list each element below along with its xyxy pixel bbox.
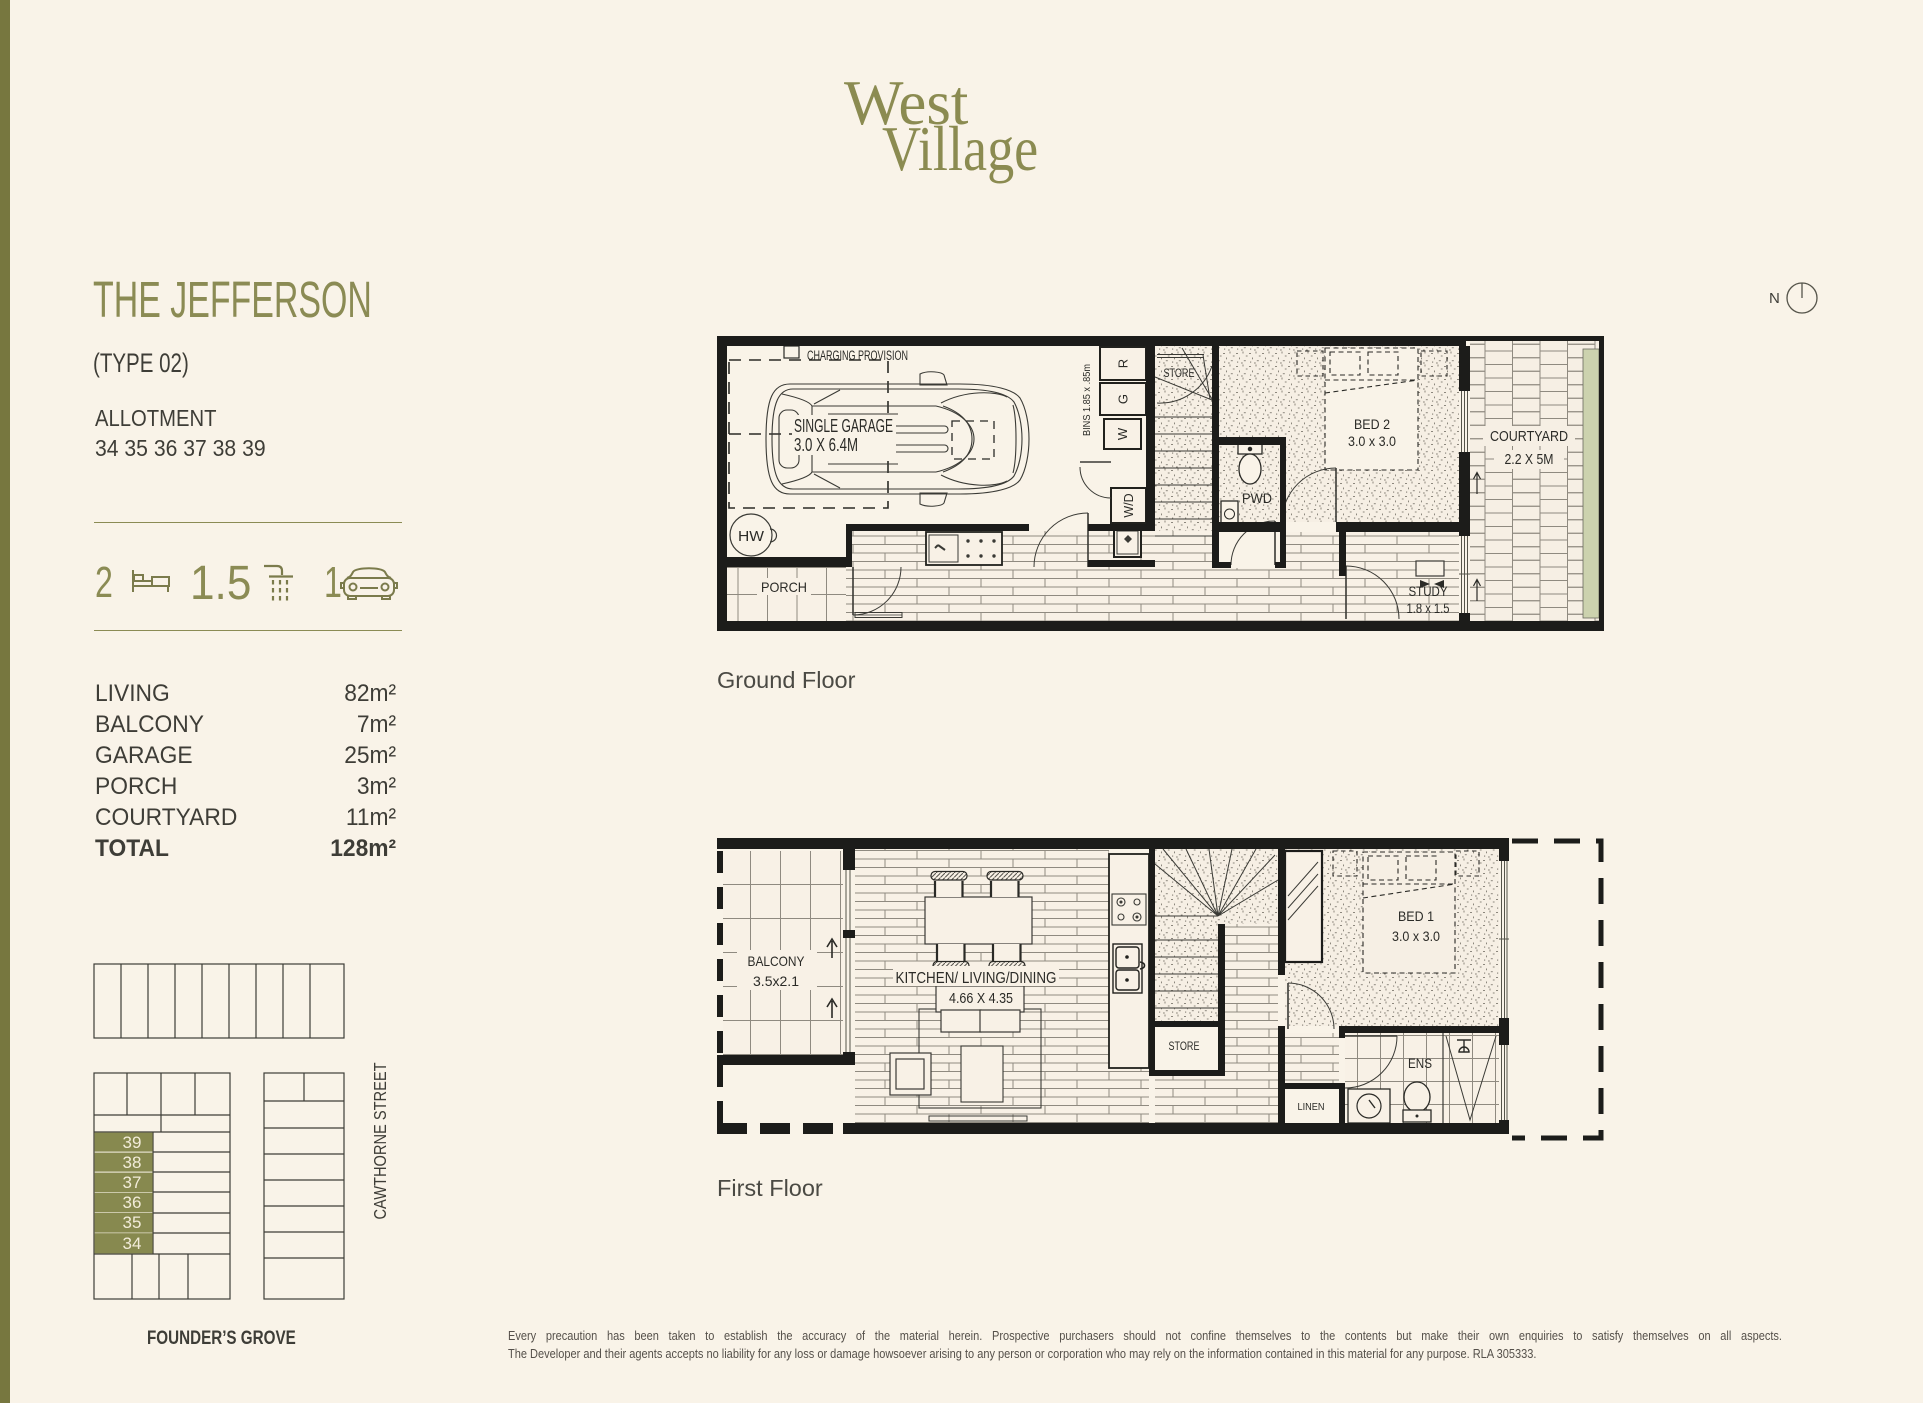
svg-text:BED 2: BED 2 bbox=[1354, 416, 1390, 432]
svg-text:COURTYARD: COURTYARD bbox=[1490, 428, 1568, 445]
svg-text:SINGLE GARAGE: SINGLE GARAGE bbox=[794, 416, 893, 436]
svg-text:35: 35 bbox=[123, 1213, 142, 1232]
svg-text:G: G bbox=[1116, 394, 1131, 404]
svg-text:HW: HW bbox=[738, 529, 764, 545]
svg-text:ENS: ENS bbox=[1408, 1055, 1432, 1071]
svg-text:CHARGING PROVISION: CHARGING PROVISION bbox=[807, 348, 908, 363]
svg-text:1.5: 1.5 bbox=[190, 556, 251, 608]
svg-text:W/D: W/D bbox=[1122, 493, 1136, 517]
svg-text:36: 36 bbox=[123, 1193, 142, 1212]
svg-text:4.66 X 4.35: 4.66 X 4.35 bbox=[949, 991, 1013, 1007]
svg-text:BED 1: BED 1 bbox=[1398, 908, 1434, 924]
svg-text:BALCONY: BALCONY bbox=[748, 953, 806, 969]
svg-text:N: N bbox=[1769, 290, 1780, 307]
svg-text:2: 2 bbox=[95, 558, 113, 607]
svg-text:3.0 x 3.0: 3.0 x 3.0 bbox=[1348, 433, 1396, 449]
svg-text:2.2 X 5M: 2.2 X 5M bbox=[1505, 451, 1554, 468]
svg-text:3.0 x 3.0: 3.0 x 3.0 bbox=[1392, 928, 1440, 944]
svg-text:38: 38 bbox=[123, 1153, 142, 1172]
svg-text:R: R bbox=[1116, 359, 1131, 368]
svg-text:3.0 X 6.4M: 3.0 X 6.4M bbox=[794, 435, 858, 455]
svg-text:1.8 x 1.5: 1.8 x 1.5 bbox=[1407, 600, 1450, 616]
svg-text:STUDY: STUDY bbox=[1409, 583, 1449, 599]
svg-text:PWD: PWD bbox=[1242, 490, 1272, 506]
svg-text:W: W bbox=[1115, 427, 1130, 440]
svg-text:34: 34 bbox=[123, 1234, 142, 1253]
svg-text:CAWTHORNE STREET: CAWTHORNE STREET bbox=[370, 1062, 390, 1219]
svg-text:1: 1 bbox=[324, 558, 342, 607]
svg-text:KITCHEN/ LIVING/DINING: KITCHEN/ LIVING/DINING bbox=[896, 970, 1057, 987]
svg-text:STORE: STORE bbox=[1164, 368, 1195, 380]
svg-text:LINEN: LINEN bbox=[1298, 1101, 1325, 1113]
svg-text:39: 39 bbox=[123, 1133, 142, 1152]
svg-text:37: 37 bbox=[123, 1173, 142, 1192]
svg-text:3.5x2.1: 3.5x2.1 bbox=[753, 973, 799, 989]
svg-text:STORE: STORE bbox=[1169, 1041, 1200, 1053]
svg-text:PORCH: PORCH bbox=[761, 579, 807, 595]
svg-text:BINS 1.85 x .85m: BINS 1.85 x .85m bbox=[1081, 364, 1093, 436]
